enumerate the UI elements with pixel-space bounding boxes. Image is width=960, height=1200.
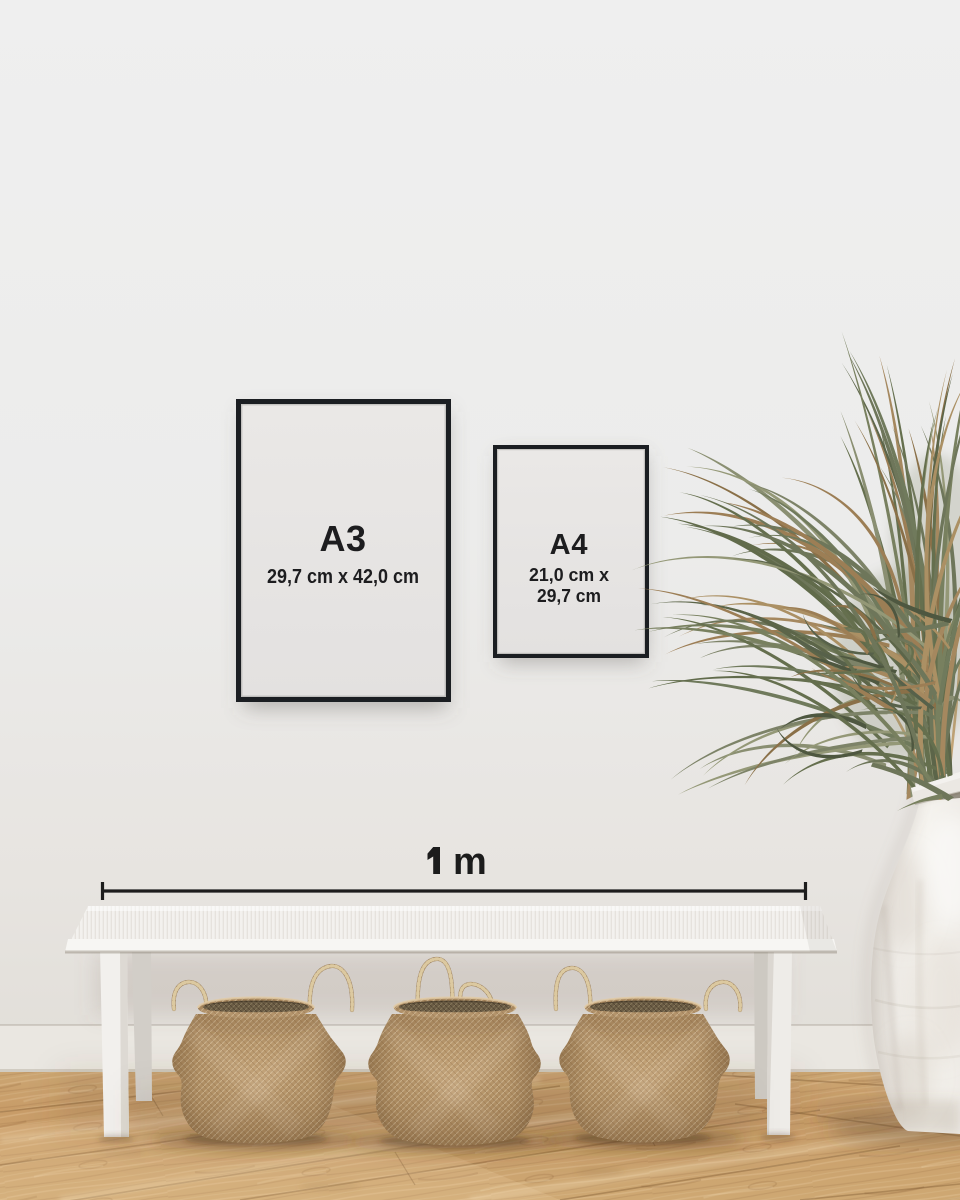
svg-text:A4: A4 [550, 529, 589, 561]
svg-text:21,0 cm x: 21,0 cm x [529, 565, 609, 585]
svg-text:A3: A3 [319, 518, 366, 559]
svg-text:m: m [453, 841, 487, 883]
svg-text:29,7 cm: 29,7 cm [537, 586, 601, 606]
svg-text:29,7 cm x 42,0 cm: 29,7 cm x 42,0 cm [267, 566, 419, 588]
